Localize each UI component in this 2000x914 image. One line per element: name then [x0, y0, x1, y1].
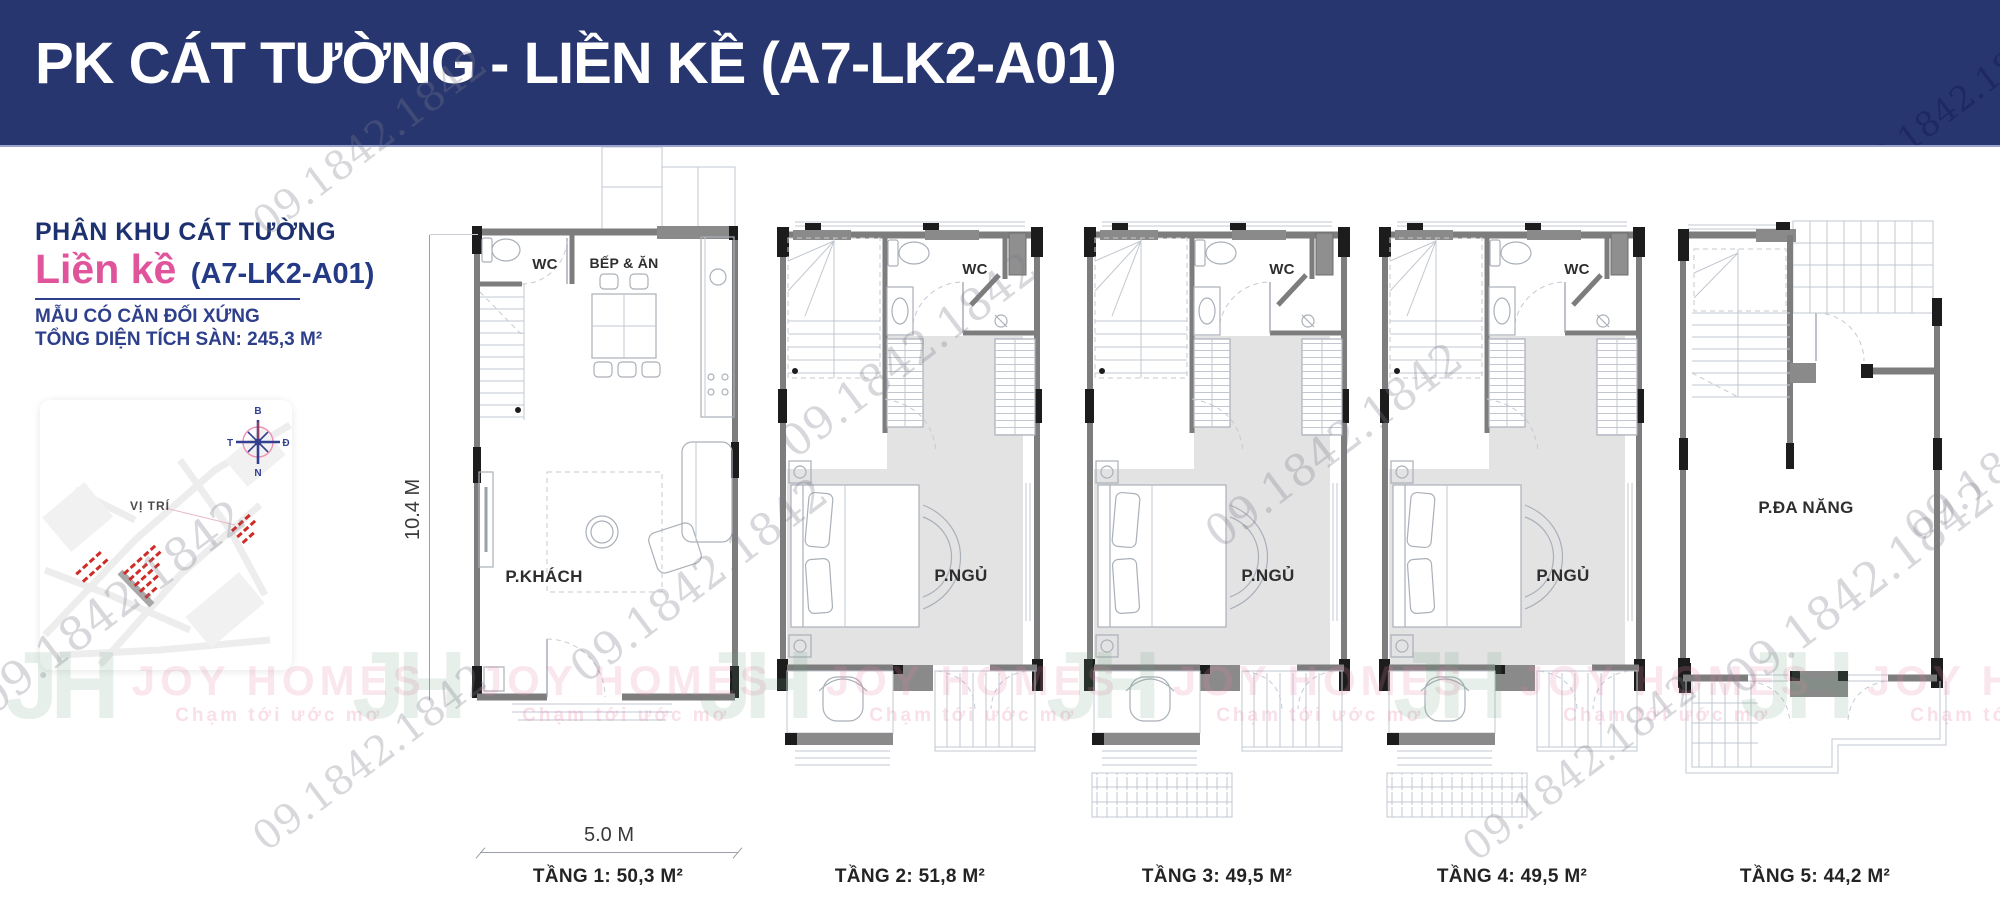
- room-label-wc: WC: [532, 256, 558, 273]
- caption-level-2: TẦNG 2: 51,8 M²: [800, 866, 1020, 888]
- floorplan-sheet: 09.1842.1842 PK CÁT TƯỜNG - LIỀN KỀ (A7-…: [0, 0, 2000, 914]
- site-map: VỊ TRÍ B Đ N T: [40, 400, 292, 670]
- page-title: PK CÁT TƯỜNG - LIỀN KỀ (A7-LK2-A01): [35, 30, 1116, 97]
- brand-tagline: Chạm tới ước mơ: [175, 705, 382, 726]
- room-label-bedroom: P.NGỦ: [1536, 566, 1589, 585]
- floorplan-level-5: P.ĐA NĂNG: [1678, 213, 1953, 793]
- divider: [35, 298, 300, 300]
- depth-dimension-label: 10.4 M: [402, 479, 425, 540]
- title-bar: 09.1842.1842 PK CÁT TƯỜNG - LIỀN KỀ (A7-…: [0, 0, 2000, 147]
- dining-set: [592, 274, 660, 377]
- stairs: [480, 284, 524, 420]
- location-label: VỊ TRÍ: [130, 498, 170, 513]
- unit-code: (A7-LK2-A01): [191, 258, 375, 290]
- sofa: [682, 442, 732, 542]
- caption-level-1: TẦNG 1: 50,3 M²: [498, 866, 718, 888]
- location-map: VỊ TRÍ B Đ N T: [40, 400, 292, 670]
- dimension-tick: [733, 847, 743, 858]
- floorplan-level-1: WC BẾP & ĂN P.KHÁCH: [452, 142, 752, 727]
- yard-extension: [602, 147, 735, 232]
- floorplan-level-4: WC P.NGỦ: [1377, 221, 1647, 821]
- bottom-walls: [1679, 663, 1937, 697]
- door: [1816, 313, 1864, 361]
- stairs: [1692, 249, 1790, 397]
- compass-east: Đ: [282, 438, 289, 449]
- room-label-living: P.KHÁCH: [505, 567, 582, 586]
- room-label-wc: WC: [1269, 261, 1295, 278]
- note-symmetry: MẪU CÓ CĂN ĐỐI XỨNG: [35, 306, 260, 328]
- phone-watermark: 09.1842.1842: [1847, 17, 2000, 147]
- compass-south: N: [254, 468, 261, 479]
- room-label-bedroom: P.NGỦ: [934, 566, 987, 585]
- kitchen: [701, 237, 734, 417]
- floorplan-level-2: WC P.NGỦ: [775, 221, 1045, 821]
- width-dimension-line: [480, 852, 738, 853]
- dimension-leader: [430, 234, 478, 235]
- depth-dimension-line: [429, 235, 430, 700]
- compass-west: T: [227, 438, 233, 449]
- pergola-grid: [1793, 221, 1933, 313]
- stove-icon: [708, 374, 728, 395]
- room-label-kitchen: BẾP & ĂN: [589, 255, 658, 271]
- caption-level-5: TẦNG 5: 44,2 M²: [1705, 866, 1925, 888]
- note-total-area: TỔNG DIỆN TÍCH SÀN: 245,3 M²: [35, 329, 322, 351]
- sink-icon: [710, 269, 726, 285]
- caption-level-3: TẦNG 3: 49,5 M²: [1107, 866, 1327, 888]
- subdivision-label: PHÂN KHU CÁT TƯỜNG: [35, 218, 336, 247]
- toilet-icon: [482, 238, 520, 262]
- room-label-bedroom: P.NGỦ: [1241, 566, 1294, 585]
- unit-type-row: Liền kề (A7-LK2-A01): [35, 246, 374, 293]
- floorplan-level-3: WC P.NGỦ: [1082, 221, 1352, 821]
- room-label-multi: P.ĐA NĂNG: [1758, 498, 1853, 517]
- width-dimension-label: 5.0 M: [480, 824, 738, 847]
- caption-level-4: TẦNG 4: 49,5 M²: [1402, 866, 1622, 888]
- entrance: [477, 639, 735, 720]
- compass-north: B: [254, 406, 261, 417]
- brand-initials: JH: [352, 645, 459, 727]
- unit-type: Liền kề: [35, 246, 176, 292]
- room-label-wc: WC: [1564, 261, 1590, 278]
- armchair: [647, 521, 704, 575]
- dimension-tick: [476, 847, 486, 858]
- room-label-wc: WC: [962, 261, 988, 278]
